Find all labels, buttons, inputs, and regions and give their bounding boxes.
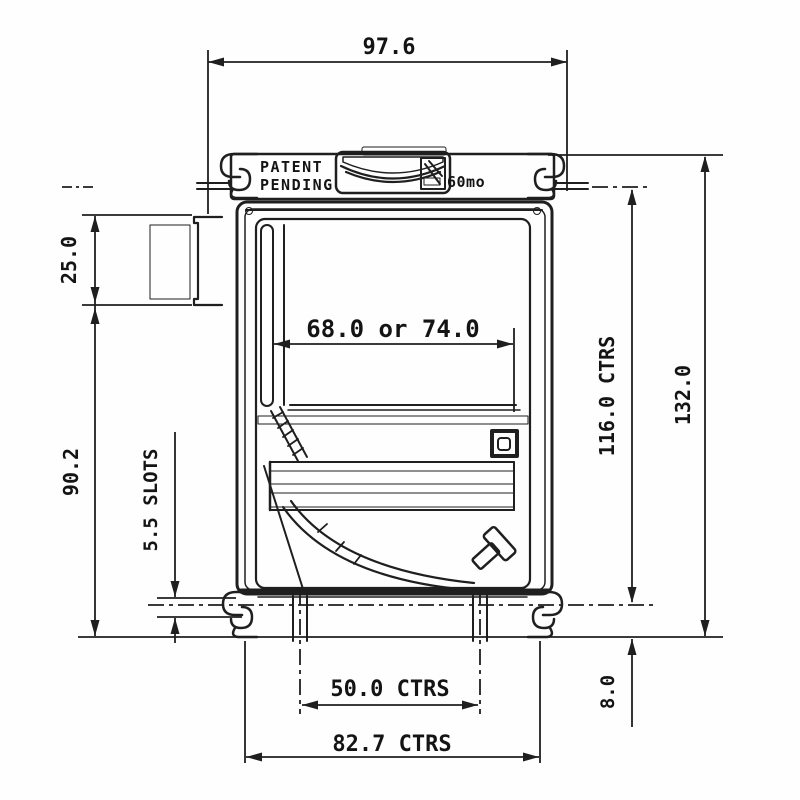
dim-body-height-label: 90.2 [59, 448, 83, 496]
patent-pending-text-line2: PENDING [260, 176, 334, 194]
dim-overall-width-label: 97.6 [363, 35, 416, 60]
mounting-ear-top-left [197, 154, 257, 198]
dim-paper-width-label: 68.0 or 74.0 [306, 315, 479, 343]
dim-outer-centres-label: 82.7 CTRS [332, 732, 451, 757]
dim-connector-height-label: 25.0 [57, 236, 81, 284]
manufacturer-logo-text: 60mo [447, 173, 485, 191]
dimension-labels: 97.6 68.0 or 74.0 25.0 90.2 5.5 SLOTS 11… [57, 35, 695, 757]
paper-chute [264, 466, 474, 590]
sensor-window [492, 431, 517, 456]
mounting-ear-top-right [528, 154, 588, 198]
tear-bar-hatching [271, 407, 307, 461]
side-connector [150, 217, 222, 305]
dim-overall-height-label: 132.0 [671, 365, 695, 425]
drawing-canvas: 97.6 68.0 or 74.0 25.0 90.2 5.5 SLOTS 11… [0, 0, 800, 800]
dim-slot-centres-label: 50.0 CTRS [330, 677, 449, 702]
bottom-mounting-slots [258, 596, 527, 641]
mounting-tab-bottom-right [528, 592, 562, 637]
dim-slot-size-label: 5.5 SLOTS [140, 449, 162, 552]
platen-bar [270, 462, 514, 510]
paper-window [256, 219, 530, 588]
patent-pending-text-line1: PATENT [260, 158, 323, 176]
dim-slot-offset-label: 8.0 [597, 675, 619, 709]
thumb-screw [465, 526, 517, 577]
technical-drawing: 97.6 68.0 or 74.0 25.0 90.2 5.5 SLOTS 11… [0, 0, 800, 800]
device-front-view [150, 147, 588, 641]
dim-mounting-centres-label: 116.0 CTRS [595, 336, 619, 456]
